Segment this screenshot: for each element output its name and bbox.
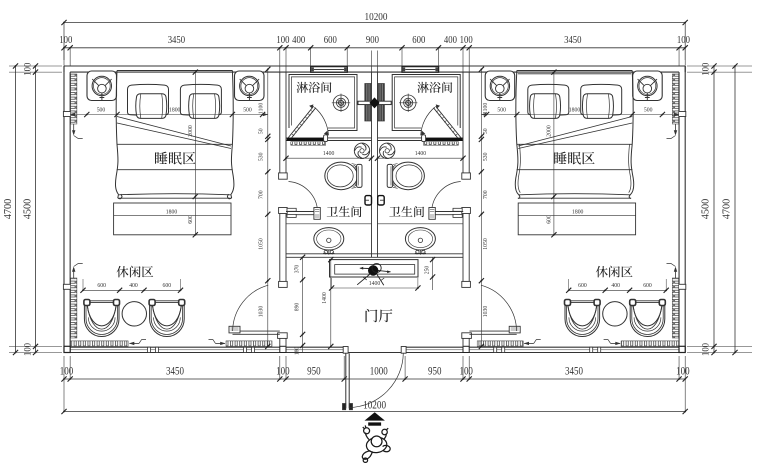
svg-text:100: 100 xyxy=(459,366,473,378)
svg-text:600: 600 xyxy=(545,215,552,224)
svg-text:4500: 4500 xyxy=(22,198,34,219)
svg-text:180: 180 xyxy=(293,346,300,355)
svg-text:530: 530 xyxy=(257,152,264,161)
svg-text:1800: 1800 xyxy=(166,209,178,216)
svg-text:4700: 4700 xyxy=(2,198,14,219)
svg-text:3450: 3450 xyxy=(166,366,184,378)
svg-text:100: 100 xyxy=(460,35,473,46)
svg-text:600: 600 xyxy=(163,282,172,289)
svg-text:100: 100 xyxy=(60,366,74,378)
svg-text:1800: 1800 xyxy=(572,209,584,216)
svg-text:100: 100 xyxy=(23,343,33,356)
svg-text:700: 700 xyxy=(482,190,489,199)
svg-text:1000: 1000 xyxy=(370,366,388,378)
svg-text:4700: 4700 xyxy=(721,198,733,219)
svg-text:100: 100 xyxy=(23,62,33,75)
svg-text:500: 500 xyxy=(97,107,106,114)
svg-text:50: 50 xyxy=(482,128,489,134)
svg-text:950: 950 xyxy=(307,366,321,378)
svg-text:1100: 1100 xyxy=(482,102,489,114)
svg-text:3450: 3450 xyxy=(565,366,583,378)
svg-text:1050: 1050 xyxy=(482,238,489,250)
svg-text:600: 600 xyxy=(578,282,587,289)
svg-text:500: 500 xyxy=(243,107,252,114)
svg-text:500: 500 xyxy=(644,107,653,114)
svg-text:100: 100 xyxy=(276,35,289,46)
svg-text:1800: 1800 xyxy=(569,107,581,114)
svg-text:500: 500 xyxy=(497,107,506,114)
svg-text:100: 100 xyxy=(701,62,711,75)
svg-text:50: 50 xyxy=(257,128,264,134)
svg-text:100: 100 xyxy=(59,35,72,46)
svg-text:400: 400 xyxy=(611,282,620,289)
svg-text:100: 100 xyxy=(701,343,711,356)
svg-text:700: 700 xyxy=(257,190,264,199)
svg-text:370: 370 xyxy=(293,264,300,273)
svg-text:3450: 3450 xyxy=(564,35,581,46)
svg-text:890: 890 xyxy=(293,302,300,311)
svg-text:10200: 10200 xyxy=(363,400,386,412)
svg-text:2000: 2000 xyxy=(545,125,552,137)
svg-text:250: 250 xyxy=(424,265,431,274)
svg-text:1030: 1030 xyxy=(482,305,489,317)
svg-text:900: 900 xyxy=(366,35,379,46)
svg-text:100: 100 xyxy=(677,35,690,46)
svg-text:600: 600 xyxy=(412,35,425,46)
svg-text:1400: 1400 xyxy=(323,150,335,157)
svg-text:1400: 1400 xyxy=(369,280,381,287)
svg-text:1400: 1400 xyxy=(415,150,427,157)
svg-text:1400: 1400 xyxy=(321,292,328,304)
svg-text:600: 600 xyxy=(324,35,337,46)
svg-text:950: 950 xyxy=(428,366,442,378)
svg-text:100: 100 xyxy=(276,366,290,378)
svg-text:400: 400 xyxy=(292,35,305,46)
svg-text:400: 400 xyxy=(129,282,138,289)
svg-text:3450: 3450 xyxy=(168,35,185,46)
svg-text:10200: 10200 xyxy=(365,12,388,23)
svg-text:1100: 1100 xyxy=(257,102,264,114)
svg-text:530: 530 xyxy=(482,152,489,161)
svg-text:600: 600 xyxy=(643,282,652,289)
svg-text:4500: 4500 xyxy=(700,198,712,219)
svg-text:600: 600 xyxy=(187,215,194,224)
svg-text:1800: 1800 xyxy=(169,107,181,114)
svg-text:400: 400 xyxy=(444,35,457,46)
svg-text:600: 600 xyxy=(97,282,106,289)
svg-text:1050: 1050 xyxy=(257,238,264,250)
svg-text:1030: 1030 xyxy=(257,305,264,317)
svg-text:100: 100 xyxy=(676,366,690,378)
svg-text:2000: 2000 xyxy=(187,125,194,137)
